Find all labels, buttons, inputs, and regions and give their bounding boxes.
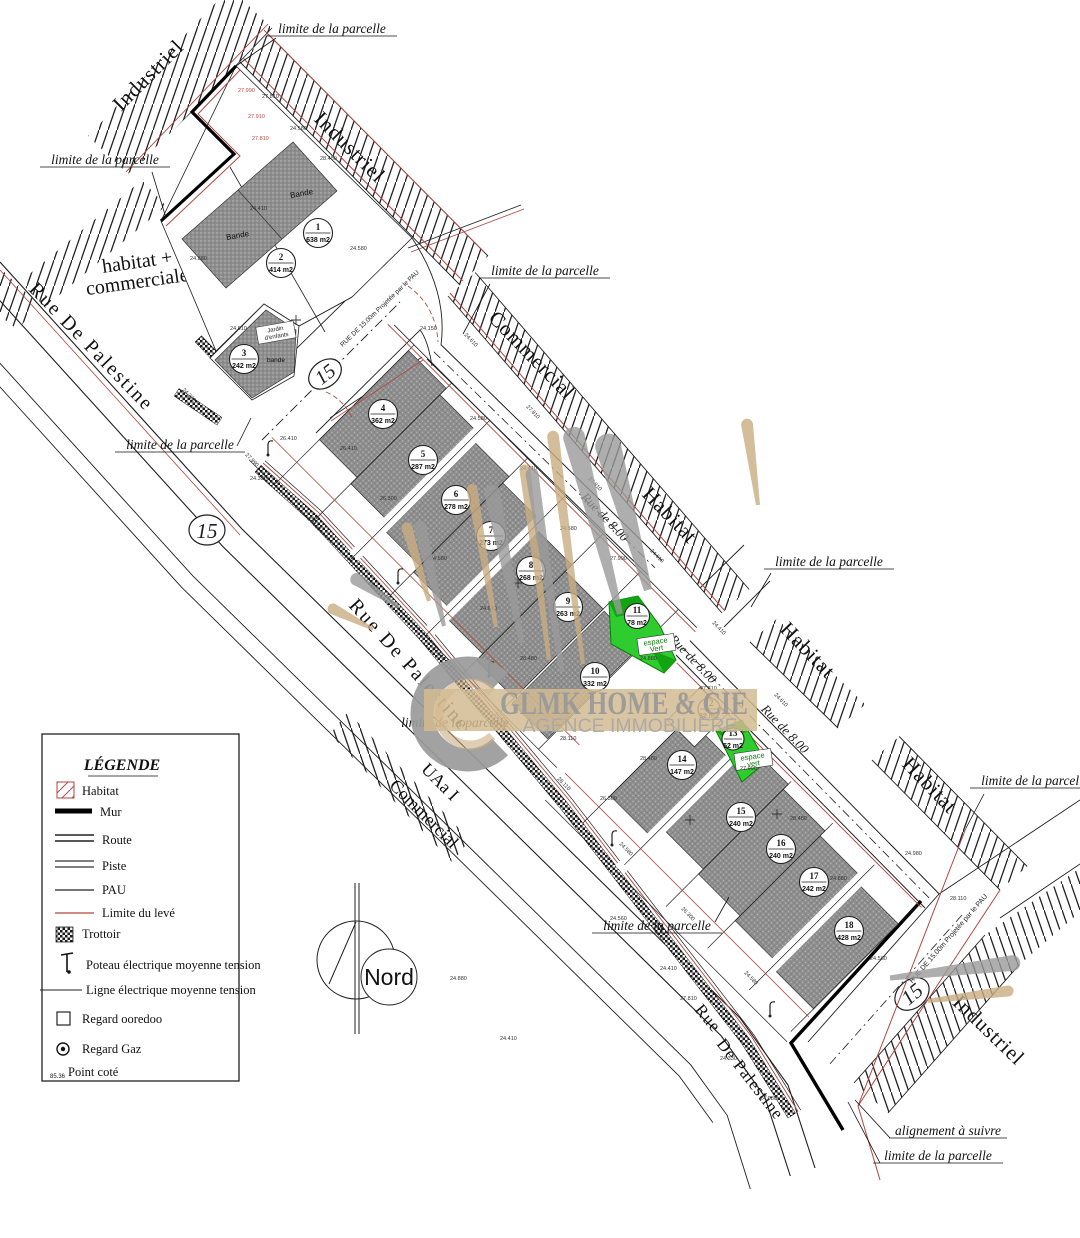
svg-text:11: 11: [633, 605, 642, 615]
svg-text:Poteau électrique moyenne tens: Poteau électrique moyenne tension: [86, 958, 261, 972]
svg-text:24.880: 24.880: [640, 656, 657, 662]
svg-text:24.150: 24.150: [420, 326, 437, 332]
svg-text:24.610: 24.610: [230, 326, 247, 332]
svg-text:24.330: 24.330: [250, 476, 267, 482]
svg-text:28.480: 28.480: [520, 656, 537, 662]
svg-text:27.910: 27.910: [248, 114, 265, 120]
svg-text:428 m2: 428 m2: [837, 935, 861, 942]
svg-text:27.810: 27.810: [680, 996, 697, 1002]
svg-text:24.560: 24.560: [870, 956, 887, 962]
svg-text:AGENCE IMMOBILIÈRE: AGENCE IMMOBILIÈRE: [523, 716, 738, 737]
svg-text:240 m2: 240 m2: [729, 821, 753, 828]
svg-text:Mur: Mur: [100, 805, 122, 819]
svg-text:147 m2: 147 m2: [670, 769, 694, 776]
svg-text:Point coté: Point coté: [68, 1065, 119, 1079]
svg-text:2: 2: [279, 252, 284, 262]
svg-text:287 m2: 287 m2: [411, 464, 435, 471]
svg-text:5: 5: [421, 449, 426, 459]
svg-text:414 m2: 414 m2: [269, 267, 293, 274]
svg-text:27.810: 27.810: [252, 136, 269, 142]
svg-text:17: 17: [810, 871, 820, 881]
svg-text:15: 15: [197, 519, 218, 543]
svg-text:52 m2: 52 m2: [723, 743, 743, 750]
svg-text:27.990: 27.990: [740, 766, 757, 772]
svg-text:240 m2: 240 m2: [769, 853, 793, 860]
svg-text:24.580: 24.580: [290, 126, 307, 132]
svg-text:Ligne électrique moyenne tensi: Ligne électrique moyenne tension: [86, 983, 256, 997]
svg-text:limite de la parcelle: limite de la parcelle: [126, 437, 234, 452]
svg-text:alignement à suivre: alignement à suivre: [895, 1123, 1001, 1138]
svg-text:24.330: 24.330: [720, 1056, 737, 1062]
svg-text:bande: bande: [267, 357, 285, 364]
svg-text:Regard Gaz: Regard Gaz: [82, 1042, 142, 1056]
svg-text:10: 10: [591, 666, 601, 676]
svg-text:85.36: 85.36: [50, 1074, 66, 1080]
svg-text:28.480: 28.480: [790, 816, 807, 822]
svg-text:limite de la parcelle: limite de la parcelle: [51, 152, 159, 167]
svg-text:362 m2: 362 m2: [371, 418, 395, 425]
svg-text:24.980: 24.980: [905, 851, 922, 857]
svg-text:27.990: 27.990: [610, 556, 627, 562]
svg-text:limite de la parcelle: limite de la parcelle: [775, 554, 883, 569]
svg-text:28.480: 28.480: [320, 156, 337, 162]
svg-text:16: 16: [777, 838, 787, 848]
svg-text:242 m2: 242 m2: [232, 363, 256, 370]
svg-text:24.980: 24.980: [760, 1096, 777, 1102]
svg-text:24.410: 24.410: [500, 1036, 517, 1042]
svg-text:Nord: Nord: [364, 964, 414, 990]
svg-text:78 m2: 78 m2: [627, 620, 647, 627]
svg-text:26.410: 26.410: [340, 446, 357, 452]
svg-text:24.410: 24.410: [660, 966, 677, 972]
svg-text:limite de la parcelle: limite de la parcelle: [884, 1148, 992, 1163]
svg-text:24.580: 24.580: [350, 246, 367, 252]
svg-text:24.410: 24.410: [250, 206, 267, 212]
svg-text:Trottoir: Trottoir: [82, 927, 121, 941]
svg-text:PAU: PAU: [102, 883, 126, 897]
svg-text:24.560: 24.560: [610, 916, 627, 922]
svg-text:24.880: 24.880: [190, 256, 207, 262]
svg-text:9: 9: [566, 596, 571, 606]
svg-text:Regard ooredoo: Regard ooredoo: [82, 1012, 162, 1026]
svg-text:limite de la parcelle: limite de la parcelle: [278, 21, 386, 36]
svg-text:3: 3: [242, 348, 247, 358]
svg-text:24.580: 24.580: [470, 416, 487, 422]
svg-text:Habitat: Habitat: [82, 784, 119, 798]
svg-text:limite de la parcelle: limite de la parcelle: [981, 773, 1080, 788]
svg-text:638 m2: 638 m2: [306, 237, 330, 244]
svg-text:24.880: 24.880: [830, 876, 847, 882]
svg-text:18: 18: [845, 920, 855, 930]
svg-text:14: 14: [678, 754, 688, 764]
svg-text:26.300: 26.300: [380, 496, 397, 502]
svg-text:4: 4: [381, 403, 386, 413]
svg-text:278 m2: 278 m2: [444, 504, 468, 511]
svg-text:242 m2: 242 m2: [802, 886, 826, 893]
svg-text:Limite du levé: Limite du levé: [102, 906, 175, 920]
svg-text:6: 6: [454, 489, 459, 499]
svg-text:27.810: 27.810: [262, 94, 279, 100]
svg-text:27.990: 27.990: [238, 88, 255, 94]
svg-text:28.480: 28.480: [640, 756, 657, 762]
svg-text:28.110: 28.110: [950, 896, 966, 902]
svg-text:26.300: 26.300: [600, 796, 617, 802]
svg-text:Piste: Piste: [102, 859, 127, 873]
svg-text:15: 15: [737, 806, 747, 816]
svg-text:24.880: 24.880: [450, 976, 467, 982]
svg-text:Route: Route: [102, 833, 132, 847]
svg-text:LÉGENDE: LÉGENDE: [83, 755, 160, 774]
svg-text:26.410: 26.410: [280, 436, 297, 442]
svg-text:limite de la parcelle: limite de la parcelle: [491, 263, 599, 278]
svg-text:1: 1: [316, 222, 321, 232]
